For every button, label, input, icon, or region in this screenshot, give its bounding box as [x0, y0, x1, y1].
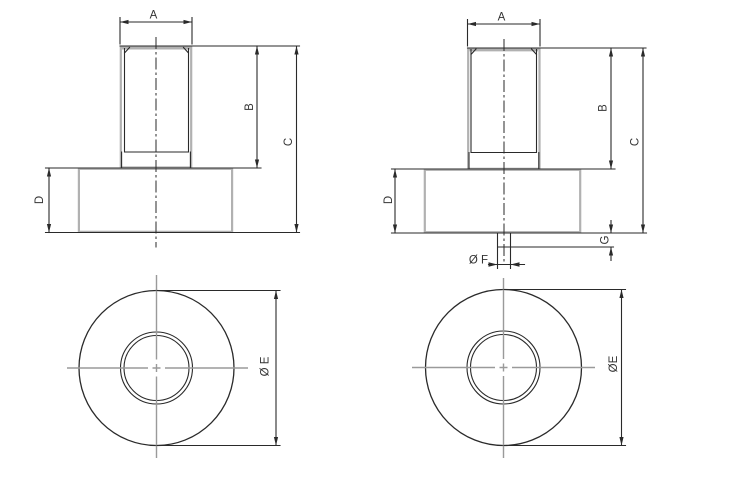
dim-f-label: Ø F: [469, 255, 488, 267]
object-edges: [392, 48, 647, 269]
dim-d: D: [383, 169, 397, 233]
dim-b-label: B: [244, 103, 256, 111]
dim-c: C: [630, 48, 646, 233]
center-crosshair: [67, 275, 248, 458]
object-edges: [46, 46, 300, 233]
dim-b: B: [244, 46, 259, 168]
dim-e-label: Ø E: [260, 356, 272, 376]
base-outline-aux: [425, 170, 580, 232]
drawing-canvas: A B C D A B: [0, 0, 743, 480]
dim-g-label: G: [600, 235, 612, 244]
dim-b-label: B: [598, 104, 610, 112]
dim-c-label: C: [283, 138, 295, 146]
dim-e-label: ØE: [608, 355, 620, 372]
technical-drawing-page: A B C D A B: [0, 0, 743, 480]
dim-b: B: [598, 48, 614, 169]
bottom-view-variant-b: ØE: [412, 278, 626, 458]
dim-a-label: A: [150, 10, 158, 22]
side-view-variant-b: A B C D G Ø F: [383, 12, 647, 269]
dim-c-label: C: [630, 138, 642, 146]
dim-a-label: A: [498, 12, 506, 24]
dim-d-label: D: [34, 196, 46, 204]
side-view-variant-a: A B C D: [34, 10, 300, 248]
dim-c: C: [283, 46, 299, 233]
dim-d: D: [34, 168, 51, 233]
dim-g: G: [600, 221, 614, 261]
dim-f: Ø F: [469, 255, 525, 267]
dim-d-label: D: [383, 196, 395, 204]
center-crosshair: [412, 278, 595, 458]
bottom-view-variant-a: Ø E: [67, 275, 280, 458]
